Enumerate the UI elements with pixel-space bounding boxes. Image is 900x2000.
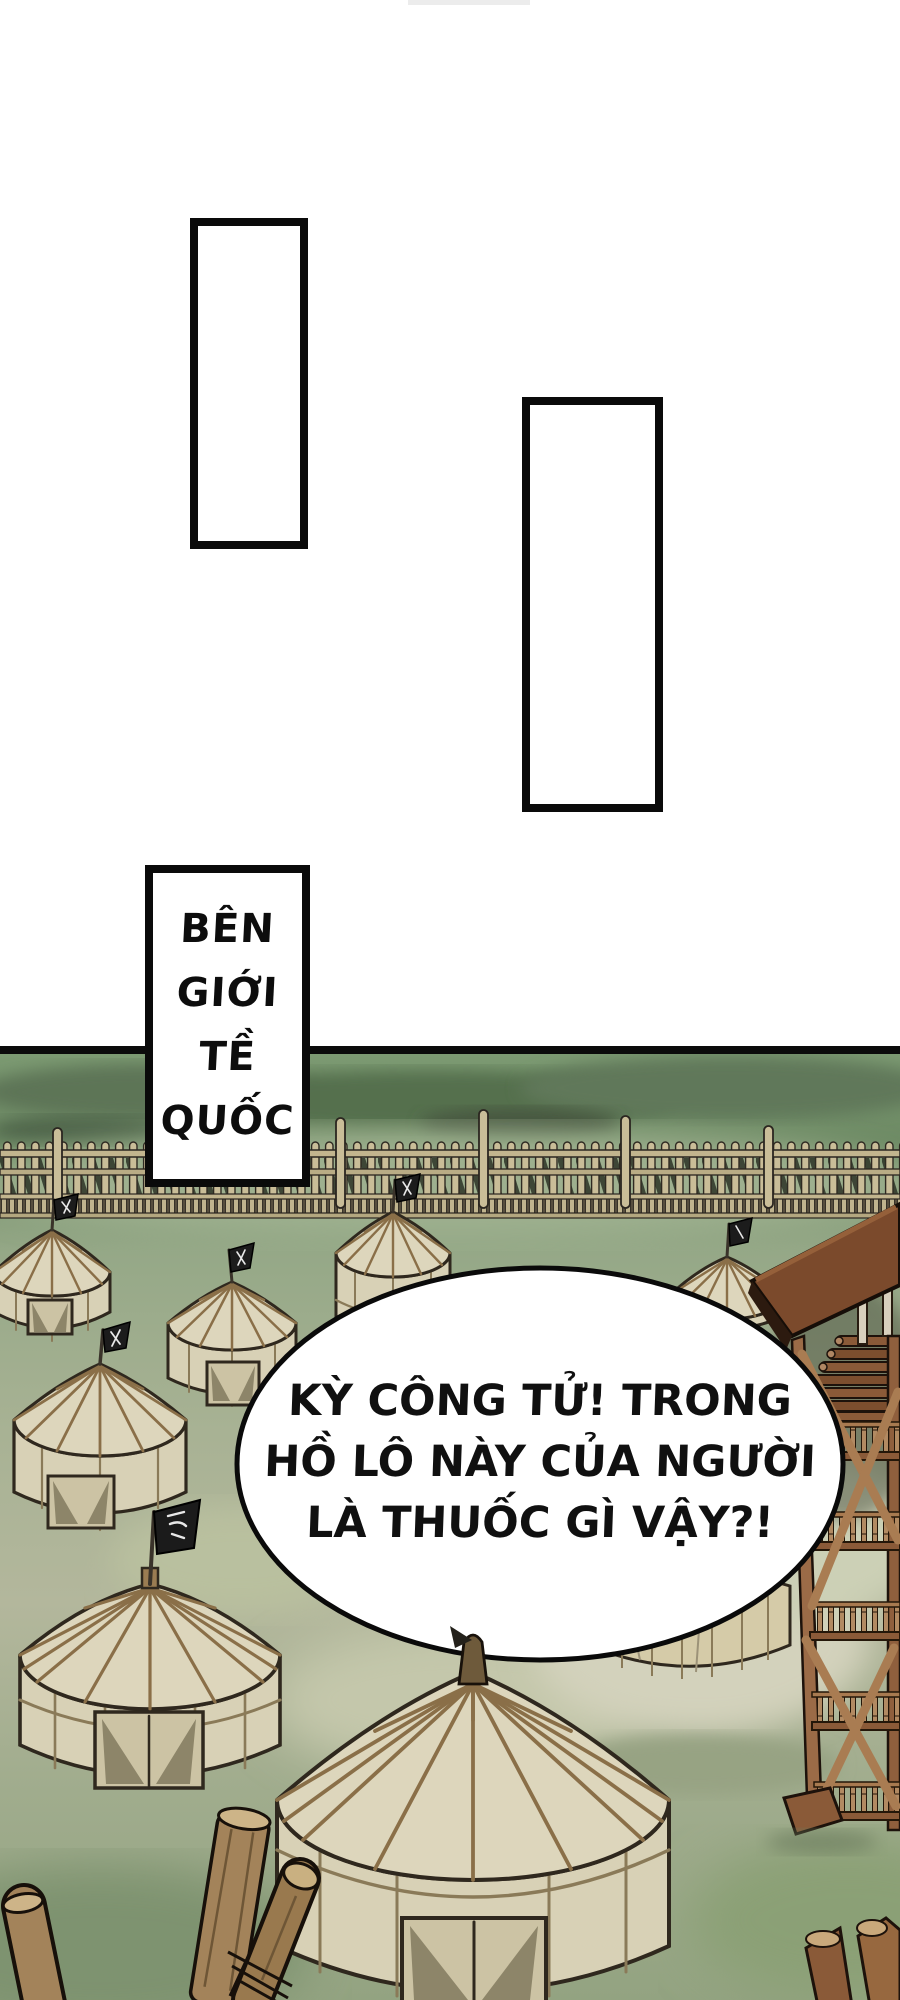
cropped-panel-remnant — [408, 0, 530, 5]
caption-line: QUỐC — [151, 1089, 303, 1153]
panel-border — [0, 1046, 900, 1054]
empty-vertical-panel-1 — [190, 218, 308, 549]
bubble-line: LÀ THUỐC GÌ VẬY?! — [229, 1493, 851, 1554]
bubble-line: KỲ CÔNG TỬ! TRONG — [229, 1371, 851, 1432]
caption-line: TỀ — [151, 1025, 303, 1089]
caption-line: BÊN — [151, 897, 303, 961]
empty-vertical-panel-2 — [522, 397, 663, 812]
comic-page: BÊN GIỚI TỀ QUỐC KỲ CÔNG TỬ! TRONG HỒ LÔ… — [0, 0, 900, 2000]
speech-bubble-text: KỲ CÔNG TỬ! TRONG HỒ LÔ NÀY CỦA NGƯỜI LÀ… — [230, 1371, 850, 1554]
bubble-line: HỒ LÔ NÀY CỦA NGƯỜI — [229, 1432, 851, 1493]
caption-line: GIỚI — [151, 961, 303, 1025]
caption-box: BÊN GIỚI TỀ QUỐC — [145, 865, 310, 1187]
